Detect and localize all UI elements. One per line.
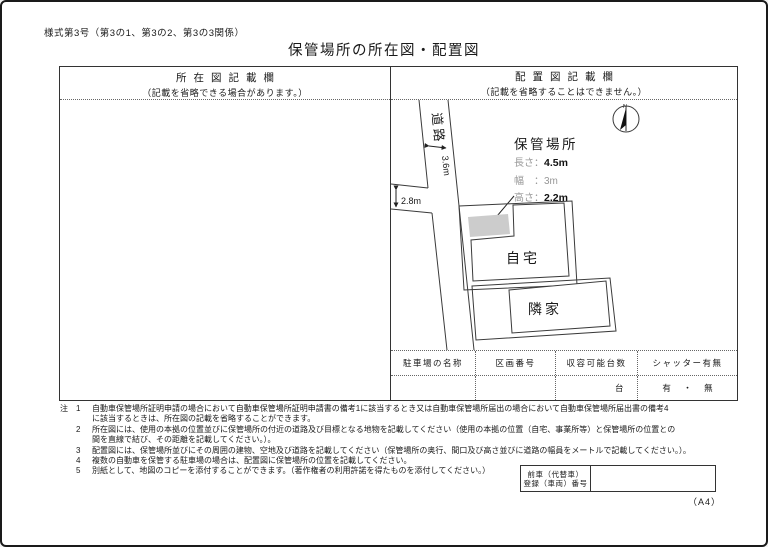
header-section-number: 区画番号: [475, 351, 555, 375]
placement-table-header-row: 駐車場の名称 区画番号 収容可能台数 シャッター有無: [391, 351, 737, 376]
placement-table-value-row: 台 有 ・ 無: [391, 376, 737, 400]
layout-map-column: 配置図記載欄 （記載を省略することはできません。）: [390, 67, 737, 400]
layout-map-title: 配置図記載欄: [515, 69, 620, 84]
previous-vehicle-box: 前車（代替車） 登録（車両）番号: [520, 465, 716, 492]
compass-n-label: N: [623, 104, 627, 110]
parking-name-field: [391, 376, 475, 400]
paper-size-note: （A4）: [688, 495, 721, 508]
header-shutter: シャッター有無: [637, 351, 737, 375]
layout-map-area: 道路 3.6m 2.8m N 保管場所 長さ：4.5m 幅: [391, 100, 737, 350]
header-capacity: 収容可能台数: [555, 351, 637, 375]
north-compass-icon: N: [613, 104, 639, 132]
note-marker: 注: [60, 404, 76, 414]
section-number-field: [475, 376, 555, 400]
neighbor-label: 隣家: [528, 301, 562, 317]
own-house-building: [471, 203, 569, 281]
note-row: 3 配置図には、保管場所並びにその周囲の建物、空地及び道路を記載してください（保…: [60, 446, 766, 456]
note-row: に該当するときは、所在図の記載を省略することができます。: [60, 414, 766, 424]
form-number: 様式第3号（第3の1、第3の2、第3の3関係）: [44, 25, 245, 39]
form-page: 様式第3号（第3の1、第3の2、第3の3関係） 保管場所の所在図・配置図 所在図…: [0, 0, 768, 547]
capacity-field: 台: [555, 376, 637, 400]
storage-title: 保管場所: [514, 137, 578, 152]
header-parking-name: 駐車場の名称: [391, 351, 475, 375]
branch-road-width-label: 2.8m: [401, 196, 421, 206]
page-title: 保管場所の所在図・配置図: [2, 39, 766, 60]
note-row: 注 1 自動車保管場所証明申請の場合において自動車保管場所証明申請書の備考1に該…: [60, 404, 766, 414]
shutter-options: 有 ・ 無: [637, 376, 737, 400]
placement-table: 駐車場の名称 区画番号 収容可能台数 シャッター有無 台 有 ・ 無: [391, 350, 737, 400]
storage-length: 長さ：4.5m: [514, 157, 568, 169]
main-road-left-edge-lower: [432, 213, 447, 350]
location-map-subtitle: （記載を省略できる場合があります。）: [142, 86, 307, 99]
location-map-area: [60, 100, 390, 400]
previous-vehicle-label: 前車（代替車） 登録（車両）番号: [521, 466, 591, 491]
layout-map-header: 配置図記載欄 （記載を省略することはできません。）: [391, 67, 737, 100]
note-row: 2 所在図には、使用の本拠の位置並びに保管場所の付近の道路及び目標となる地物を記…: [60, 425, 766, 435]
own-house-label: 自宅: [506, 250, 540, 266]
branch-road-bottom-edge: [391, 209, 432, 213]
location-map-column: 所在図記載欄 （記載を省略できる場合があります。）: [60, 67, 390, 400]
storage-width: 幅 ：3m: [514, 174, 558, 187]
previous-vehicle-number-field: [591, 466, 715, 491]
road-width-label: 3.6m: [440, 155, 452, 176]
layout-diagram: 道路 3.6m 2.8m N 保管場所 長さ：4.5m 幅: [391, 100, 737, 350]
layout-map-subtitle: （記載を省略することはできません。）: [481, 85, 647, 98]
note-row: 間を直線で結び、その距離を記載してください。）。: [60, 435, 766, 445]
branch-road-top-edge: [391, 184, 428, 188]
road-label: 道路: [429, 111, 447, 144]
main-road-left-edge-upper: [419, 100, 428, 188]
parking-spot-rect: [468, 214, 510, 237]
road-width-arrow: [429, 146, 446, 148]
location-map-header: 所在図記載欄 （記載を省略できる場合があります。）: [60, 67, 390, 100]
location-map-title: 所在図記載欄: [176, 70, 281, 85]
main-frame: 所在図記載欄 （記載を省略できる場合があります。） 配置図記載欄 （記載を省略す…: [59, 66, 738, 401]
